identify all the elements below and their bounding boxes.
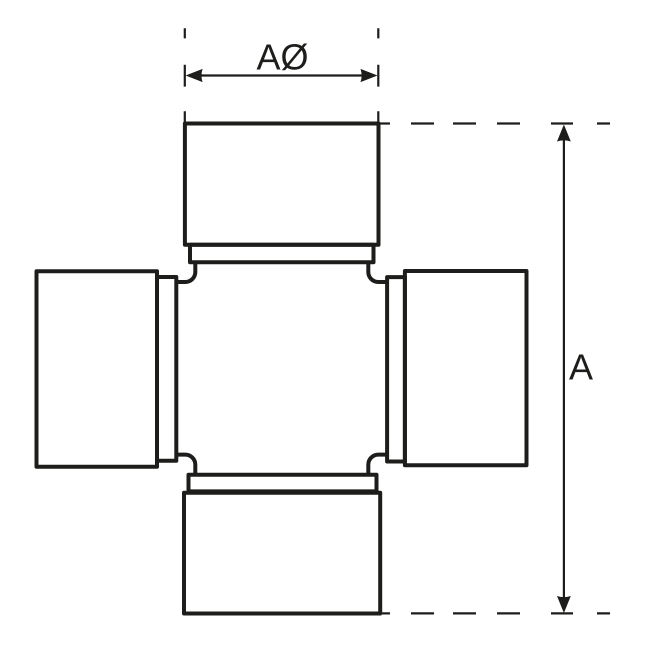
svg-text:A: A [569, 347, 593, 388]
svg-text:AØ: AØ [256, 37, 308, 78]
